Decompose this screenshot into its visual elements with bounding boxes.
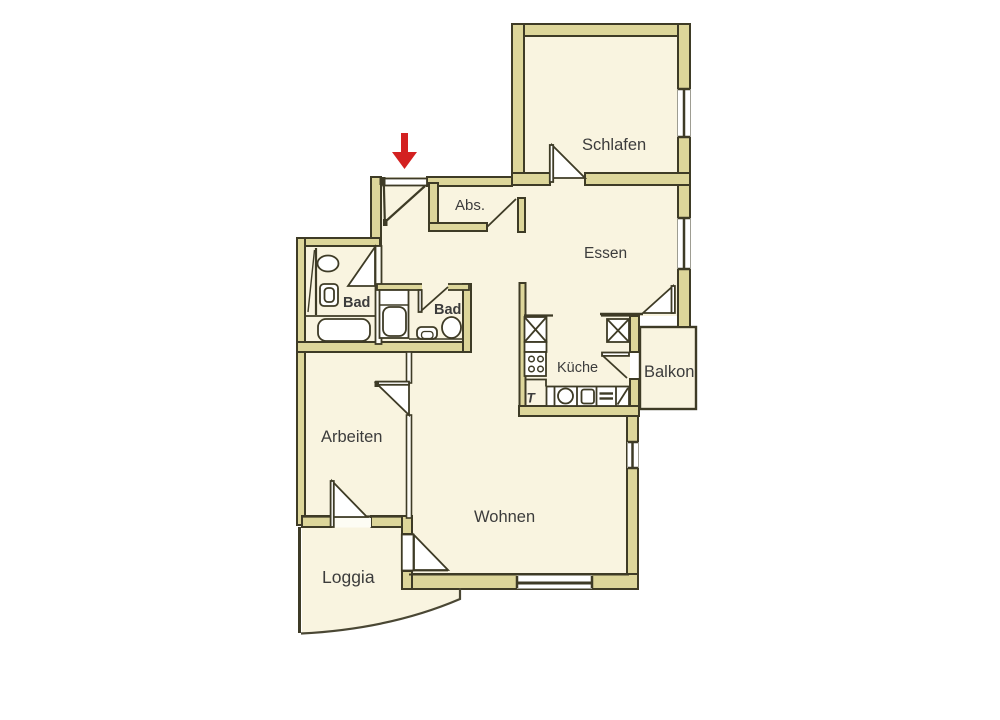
svg-text:Essen: Essen [584, 245, 627, 262]
svg-text:Loggia: Loggia [322, 567, 375, 587]
svg-text:Balkon: Balkon [644, 363, 694, 381]
svg-text:Arbeiten: Arbeiten [321, 428, 382, 446]
svg-text:Schlafen: Schlafen [582, 136, 646, 154]
svg-text:Küche: Küche [557, 360, 598, 376]
svg-text:Bad: Bad [343, 295, 370, 311]
svg-text:Wohnen: Wohnen [474, 508, 535, 526]
svg-text:Abs.: Abs. [455, 197, 485, 214]
svg-text:Bad: Bad [434, 302, 461, 318]
